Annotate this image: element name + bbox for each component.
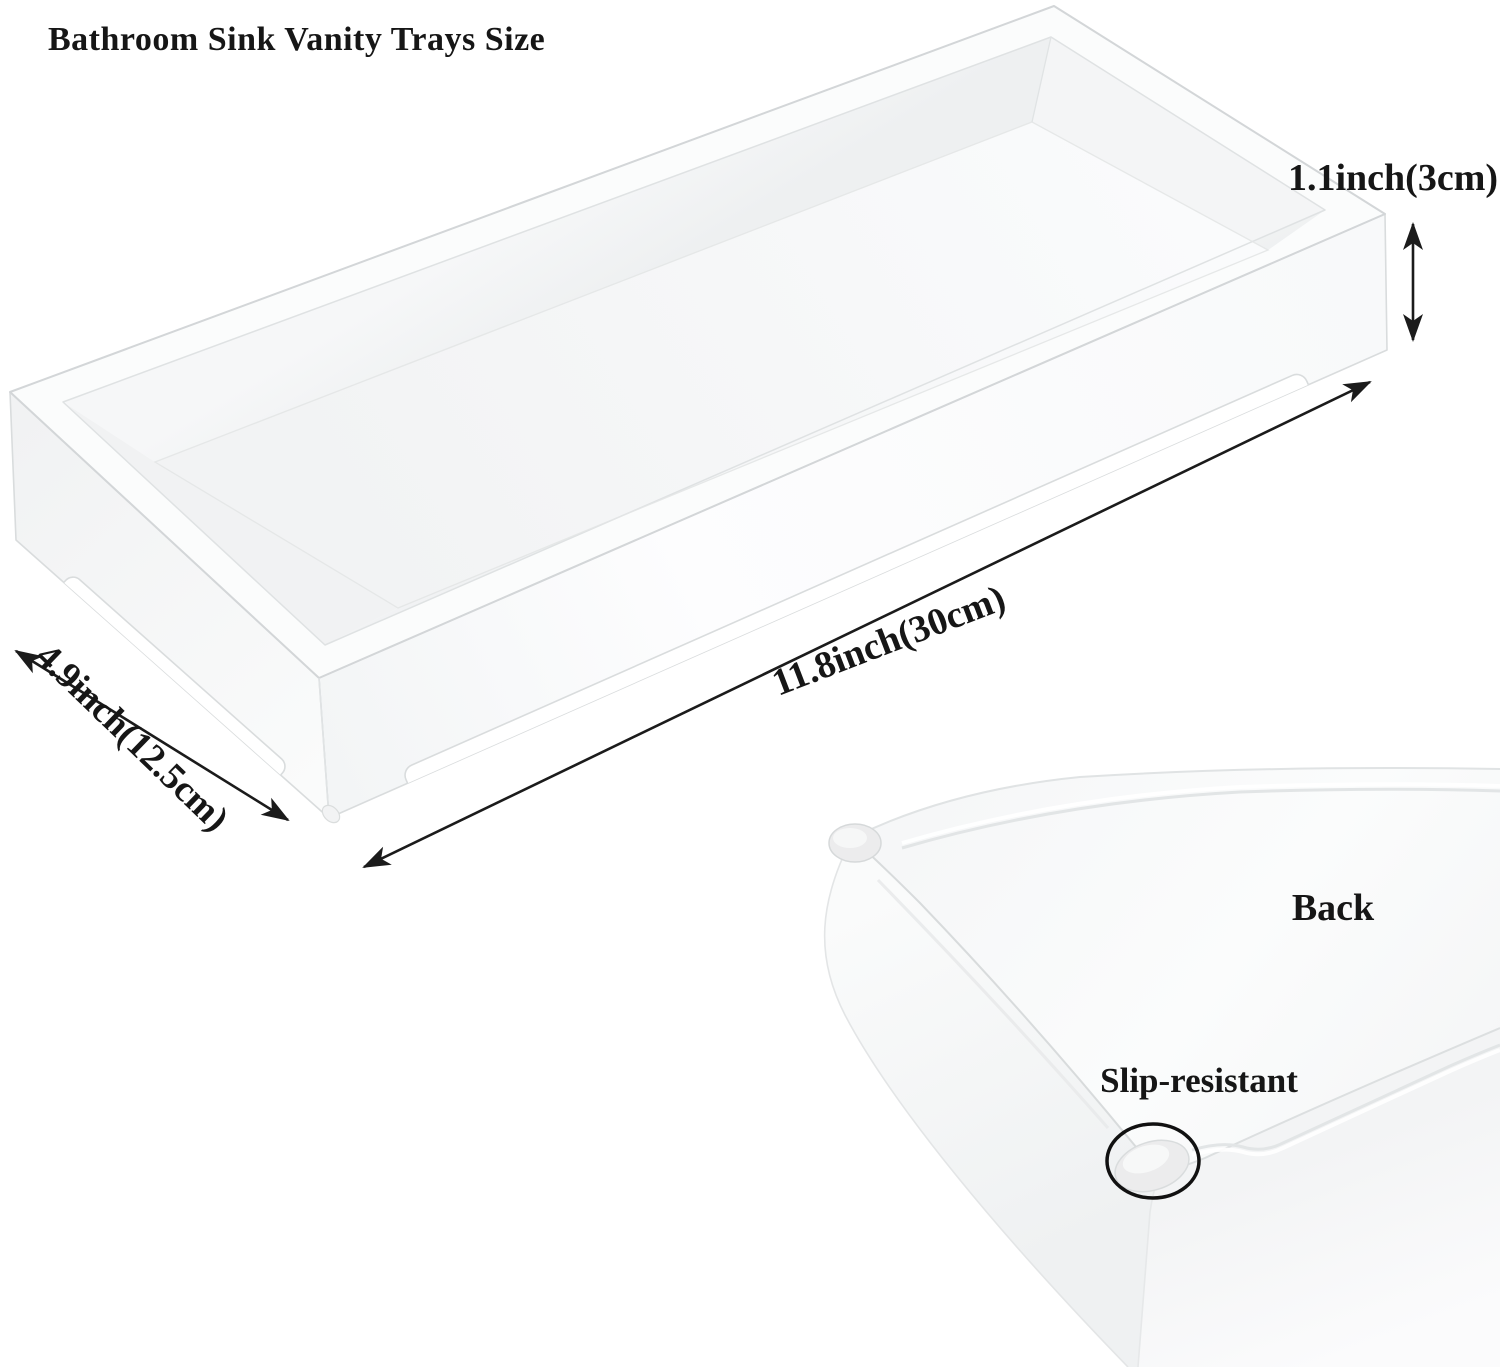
main-tray-image: [10, 6, 1387, 826]
product-dimension-diagram: Bathroom Sink Vanity Trays Size 1.1inch(…: [0, 0, 1500, 1367]
back-label: Back: [1292, 887, 1375, 929]
page-title: Bathroom Sink Vanity Trays Size: [48, 21, 545, 58]
diagram-svg: Bathroom Sink Vanity Trays Size 1.1inch(…: [0, 0, 1500, 1367]
slip-resistant-label: Slip-resistant: [1100, 1061, 1298, 1100]
height-label: 1.1inch(3cm): [1288, 157, 1498, 199]
backview-corner-foot-far: [829, 824, 881, 862]
